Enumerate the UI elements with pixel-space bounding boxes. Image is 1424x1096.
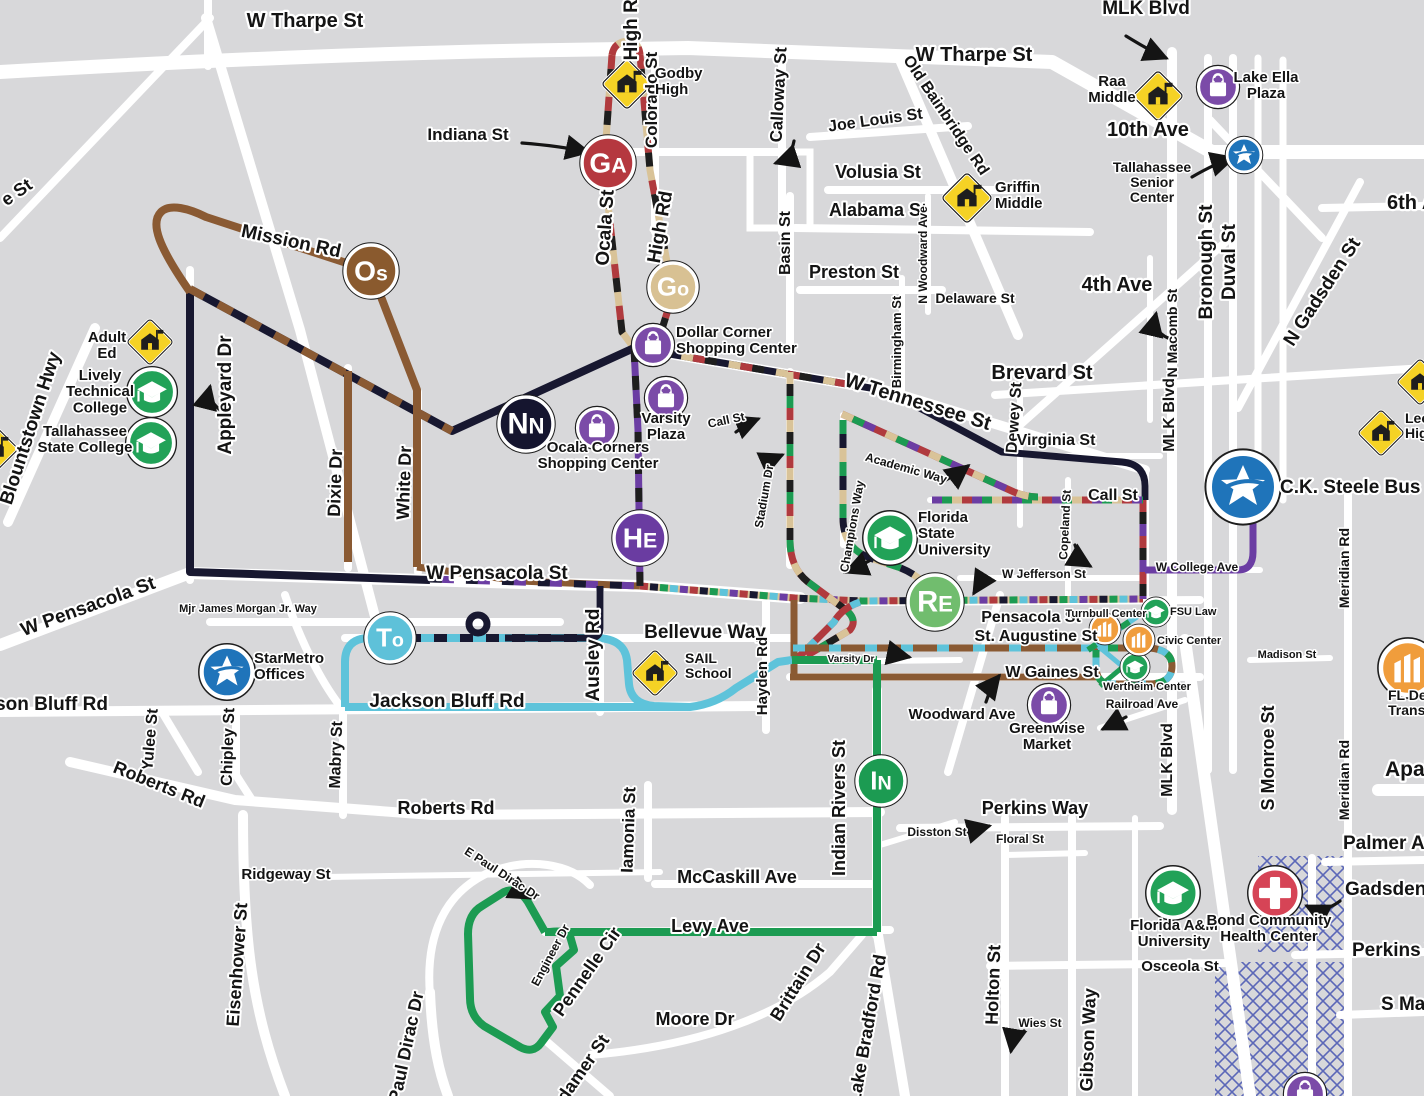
street-label: MLK Blvd [1102, 0, 1190, 19]
starmetro-offices-icon[interactable] [199, 644, 255, 700]
route-marker-re[interactable]: RE [906, 573, 964, 631]
poi-label: Florida A&MUniversity [1130, 917, 1218, 950]
ck-steele-bus-plaza-icon[interactable] [1205, 449, 1280, 524]
poi-label: LeonHigh [1405, 410, 1424, 441]
street-label: Perkins Way [1352, 940, 1424, 961]
street-label: Volusia St [835, 162, 921, 182]
street-label: Mjr James Morgan Jr. Way [179, 603, 318, 615]
poi-label: FL Dept ofTransportation [1388, 687, 1424, 718]
street-label: MLK Blvd [1161, 378, 1178, 452]
florida-state-university-icon[interactable] [863, 511, 918, 566]
florida-am-university-icon[interactable] [1146, 866, 1201, 921]
street-label: Indiana St [427, 125, 509, 144]
route-marker-label: Go [657, 274, 689, 302]
street-label: Floral St [996, 832, 1044, 846]
street-label: White Dr [393, 445, 416, 520]
poi-label: Turnbull Center [1065, 608, 1147, 620]
wertheim-center-icon[interactable] [1120, 652, 1150, 682]
street-label: Meridian Rd [1336, 740, 1352, 820]
street-label: Levy Ave [671, 916, 749, 936]
street-label: 10th Ave [1107, 119, 1189, 141]
street-label: Dixie Dr [324, 448, 346, 517]
street-label: Alabama St [829, 200, 927, 220]
street-label: Ausley Rd [583, 609, 604, 702]
street-label: W Tharpe St [247, 10, 364, 32]
civic-center-icon[interactable] [1123, 624, 1155, 656]
street-label: Palmer Ave [1343, 833, 1424, 854]
dollar-corner-icon[interactable] [631, 323, 674, 366]
poi-label: Bond CommunityHealth Center [1207, 912, 1333, 945]
street-label: Jackson Bluff Rd [369, 691, 524, 712]
route-marker-label: To [376, 625, 404, 653]
poi-label: Civic Center [1157, 635, 1222, 647]
street-label: N Woodward Ave [916, 206, 930, 304]
street-label: Call St [1088, 487, 1138, 504]
route-marker-ga[interactable]: GA [580, 135, 636, 191]
tallahassee-senior-center-icon[interactable] [1225, 136, 1263, 174]
street-label: McCaskill Ave [677, 867, 797, 887]
street-label: St. Augustine St [975, 628, 1099, 645]
street-label: Apalachee Pkwy [1385, 758, 1424, 781]
route-marker-label: NN [507, 409, 544, 441]
street-label: Bronough St [1196, 204, 1217, 320]
route-marker-os[interactable]: Os [343, 243, 399, 299]
poi-label: FSU Law [1170, 606, 1217, 618]
street-label: Indian Rivers St [829, 740, 849, 876]
street-label: Disston St [907, 825, 966, 839]
street-label: Perkins Way [982, 798, 1088, 818]
street-label: Brevard St [991, 362, 1092, 384]
route-marker-to[interactable]: To [364, 612, 416, 664]
street-label: Chipley St [219, 707, 239, 786]
poi-label: TallahasseeState College [37, 423, 132, 456]
street-label: Gibson Way [1076, 988, 1100, 1092]
poi-label: Ocala CornersShopping Center [538, 439, 659, 472]
street-label: Moore Dr [655, 1009, 734, 1029]
street-label: Iamonia St [618, 786, 640, 873]
street-label: Mabry St [327, 720, 346, 789]
street-label: Basin St [777, 210, 794, 275]
street-label: Delaware St [935, 290, 1015, 306]
street-label: W Tharpe St [916, 44, 1033, 66]
street-label: W Pensacola St [426, 563, 568, 584]
street-label: Meridian Rd [1336, 528, 1352, 608]
poi-label: Wertheim Center [1103, 681, 1192, 693]
street-label: Jackson Bluff Rd [0, 694, 108, 715]
street-label: W Jefferson St [1002, 567, 1086, 581]
route-marker-label: RE [917, 587, 953, 619]
route-marker-he[interactable]: HE [612, 510, 668, 566]
street-label: Virginia St [1017, 432, 1097, 449]
street-label: Varsity Dr [828, 654, 875, 665]
route-marker-in[interactable]: IN [855, 755, 907, 807]
poi-label: C.K. Steele Bus Plaza [1280, 477, 1424, 498]
tallahassee-state-college-icon[interactable] [126, 418, 177, 469]
street-label: Wies St [1018, 1016, 1061, 1030]
transit-map: GAGoOsNNHEToREIN W Tharpe StW Tharpe StM… [0, 0, 1424, 1096]
street-label: W College Ave [1156, 560, 1239, 574]
street-label: Preston St [809, 262, 899, 282]
street-label: Roberts Rd [397, 798, 494, 818]
street-label: Hayden Rd [754, 637, 771, 715]
street-label: MLK Blvd [1159, 723, 1176, 797]
street-label: 4th Ave [1082, 274, 1153, 296]
street-label: Osceola St [1141, 958, 1219, 975]
street-label: N Macomb St [1164, 288, 1180, 377]
street-label: Bellevue Way [644, 622, 766, 643]
street-label: Madison St [1258, 649, 1317, 661]
street-label: Ridgeway St [241, 866, 330, 883]
street-label: W Gaines St [1005, 664, 1099, 681]
route-marker-label: IN [870, 768, 891, 796]
street-label: Birmingham St [889, 295, 904, 388]
street-label: High Rd [621, 0, 642, 60]
street-label: 6th Ave [1387, 192, 1424, 214]
street-label: S Magnolia Dr [1381, 994, 1424, 1015]
street-label: Appleyard Dr [215, 335, 236, 455]
street-label: S Monroe St [1258, 705, 1278, 810]
street-label: Gadsden St [1345, 879, 1424, 900]
street-label: Woodward Ave [909, 706, 1016, 723]
route-marker-go[interactable]: Go [647, 261, 699, 313]
lively-technical-college-icon[interactable] [127, 367, 178, 418]
street-label: Duval St [1219, 223, 1240, 300]
poi-label: GriffinMiddle [995, 179, 1043, 212]
street-label: Holton St [982, 944, 1005, 1025]
street-label: Railroad Ave [1106, 697, 1179, 711]
